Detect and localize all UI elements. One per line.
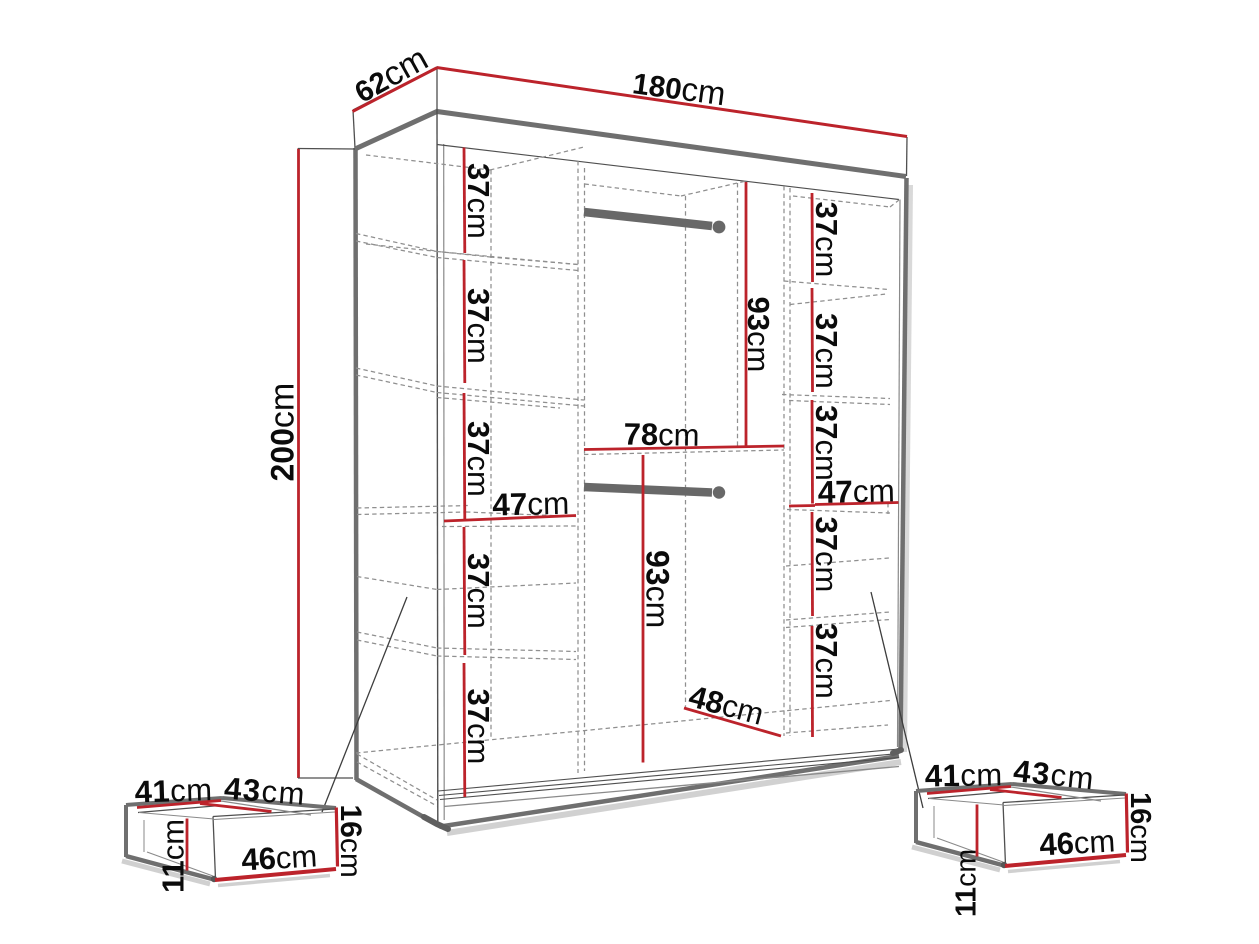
svg-text:16cm: 16cm: [1124, 792, 1156, 863]
svg-text:16cm: 16cm: [334, 805, 367, 878]
svg-text:93cm: 93cm: [640, 550, 676, 628]
svg-text:37cm: 37cm: [461, 163, 496, 239]
svg-text:37cm: 37cm: [461, 421, 496, 497]
svg-text:11cm: 11cm: [156, 819, 191, 893]
svg-text:37cm: 37cm: [809, 623, 844, 699]
svg-text:47cm: 47cm: [817, 472, 895, 510]
svg-text:78cm: 78cm: [623, 417, 699, 453]
svg-text:37cm: 37cm: [809, 313, 844, 389]
svg-text:200cm: 200cm: [264, 383, 302, 482]
svg-text:37cm: 37cm: [809, 517, 844, 593]
svg-text:37cm: 37cm: [461, 553, 496, 629]
svg-text:93cm: 93cm: [741, 297, 776, 373]
svg-text:37cm: 37cm: [461, 288, 496, 364]
svg-text:37cm: 37cm: [809, 405, 844, 481]
svg-text:41cm: 41cm: [134, 772, 213, 809]
svg-text:37cm: 37cm: [461, 689, 496, 765]
svg-text:43cm: 43cm: [223, 771, 307, 812]
svg-text:37cm: 37cm: [809, 202, 844, 278]
svg-text:11cm: 11cm: [951, 849, 983, 917]
svg-text:47cm: 47cm: [492, 485, 570, 523]
svg-text:46cm: 46cm: [240, 838, 318, 877]
svg-text:46cm: 46cm: [1038, 823, 1116, 862]
svg-text:41cm: 41cm: [925, 757, 1003, 793]
